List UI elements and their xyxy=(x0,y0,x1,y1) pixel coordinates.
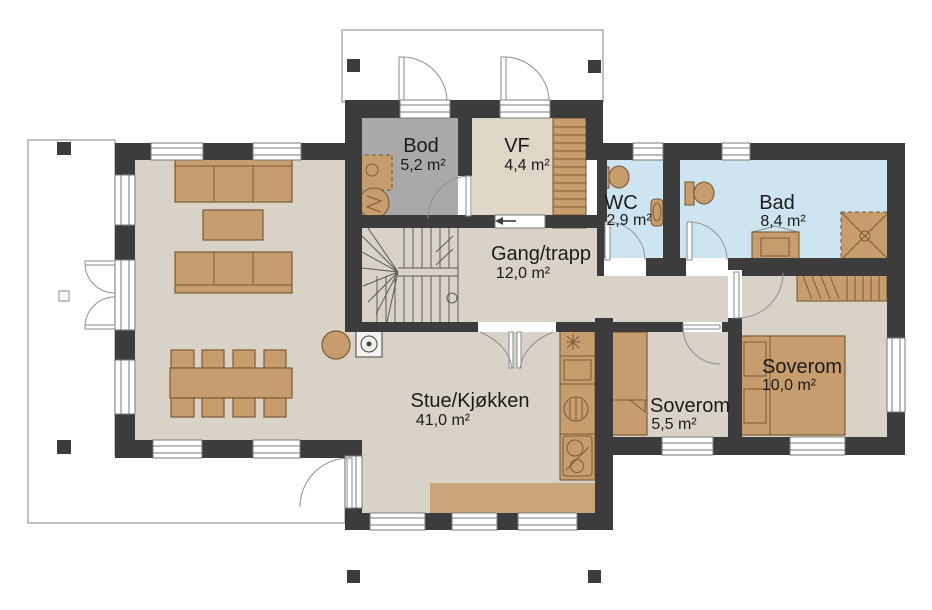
room-area: 5,5 m² xyxy=(651,416,697,433)
deck-post xyxy=(57,440,71,454)
room-area: 8,4 m² xyxy=(760,213,806,230)
chair xyxy=(233,350,255,368)
porch-post xyxy=(347,59,360,72)
window xyxy=(253,143,301,160)
deck-post-outline xyxy=(59,291,69,301)
chair xyxy=(202,350,224,368)
room-label: Gang/trapp xyxy=(491,243,591,265)
window xyxy=(722,143,750,160)
deck-post xyxy=(588,570,601,583)
window xyxy=(790,437,845,455)
window xyxy=(115,360,135,414)
window xyxy=(253,440,300,458)
room-area: 4,4 m² xyxy=(504,157,550,174)
room-area: 2,9 m² xyxy=(606,212,652,229)
entry-hall-wardrobe xyxy=(553,118,586,228)
room-label: Soverom xyxy=(650,395,730,417)
room-area: 12,0 m² xyxy=(496,265,551,282)
wood-stove-icon xyxy=(356,331,382,357)
floor-kitchen xyxy=(430,483,595,513)
room-area: 41,0 m² xyxy=(416,412,471,429)
chair xyxy=(264,398,286,417)
window xyxy=(887,338,905,412)
storage-room-fixtures xyxy=(358,155,392,218)
deck-post xyxy=(347,570,360,583)
floor-plan-svg: Bod 5,2 m² VF 4,4 m² WC 2,9 m² Bad 8,4 m… xyxy=(0,0,932,610)
entry-porch xyxy=(342,30,603,102)
wardrobe xyxy=(797,274,887,301)
hall-opening xyxy=(495,215,545,228)
window xyxy=(151,143,203,160)
dining-table xyxy=(170,368,292,398)
toilet-icon xyxy=(685,182,714,205)
floor-hallway xyxy=(597,276,728,322)
window xyxy=(633,143,663,160)
sink-icon xyxy=(651,199,663,226)
chair xyxy=(233,398,255,417)
room-area: 10,0 m² xyxy=(762,377,817,394)
room-label: Soverom xyxy=(762,356,842,378)
deck-post xyxy=(57,142,71,155)
room-label: WC xyxy=(604,192,637,214)
vent-icon xyxy=(566,334,580,350)
room-area: 5,2 m² xyxy=(400,157,446,174)
chair xyxy=(202,398,224,417)
sofa xyxy=(175,252,292,293)
workbench xyxy=(358,155,392,190)
room-label: Stue/Kjøkken xyxy=(411,390,530,412)
porch-post xyxy=(588,60,601,73)
room-label: Bod xyxy=(403,135,439,157)
chair xyxy=(171,350,194,368)
window xyxy=(115,175,135,225)
window xyxy=(153,440,202,458)
window xyxy=(452,513,497,530)
chair xyxy=(171,398,194,417)
sofa xyxy=(175,158,292,202)
window xyxy=(662,437,713,455)
floor-plan-page: Bod 5,2 m² VF 4,4 m² WC 2,9 m² Bad 8,4 m… xyxy=(0,0,932,610)
shower-icon xyxy=(841,212,889,260)
chair xyxy=(264,350,286,368)
water-heater-icon xyxy=(359,188,389,218)
room-label: Bad xyxy=(759,192,795,214)
room-label: VF xyxy=(504,135,530,157)
window xyxy=(518,513,577,530)
window xyxy=(370,513,425,530)
round-table xyxy=(322,331,350,359)
coffee-table xyxy=(203,210,263,240)
kitchen-fixtures xyxy=(560,326,595,480)
